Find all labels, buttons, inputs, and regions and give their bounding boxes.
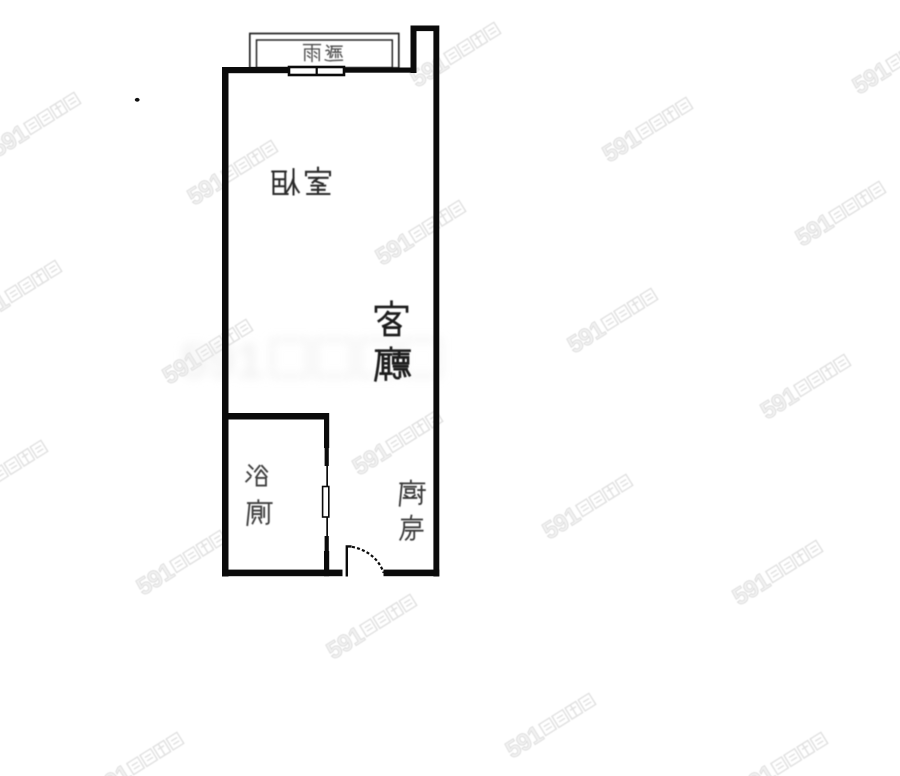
svg-text:591: 591 <box>180 333 263 389</box>
